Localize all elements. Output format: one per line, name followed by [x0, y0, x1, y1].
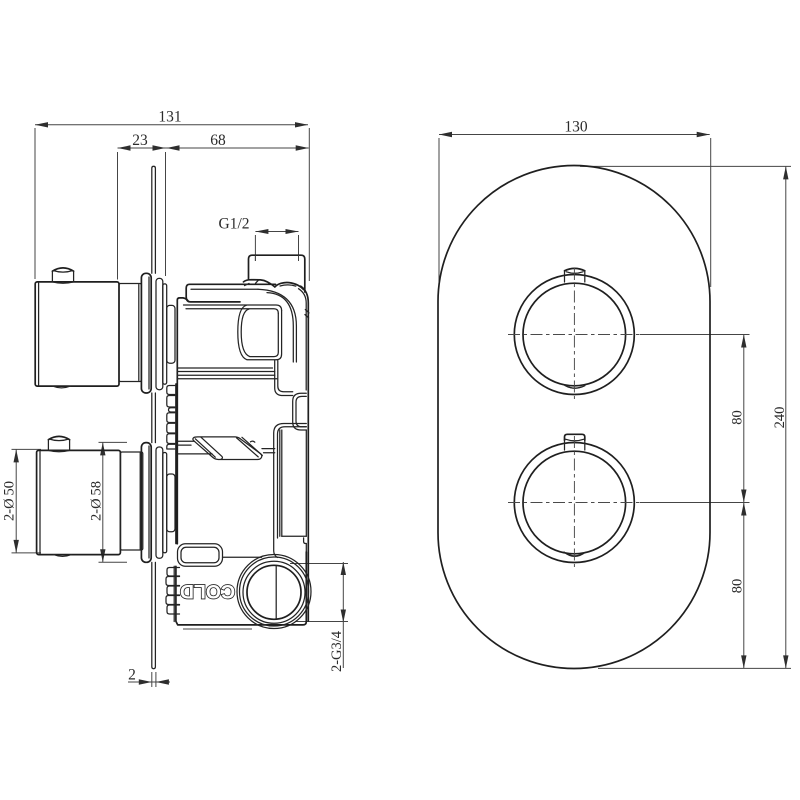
svg-text:COLD: COLD [180, 580, 235, 602]
svg-text:2-G3/4: 2-G3/4 [329, 630, 345, 672]
svg-text:2: 2 [128, 667, 136, 684]
svg-text:240: 240 [772, 407, 788, 429]
svg-text:80: 80 [729, 579, 745, 594]
svg-text:80: 80 [729, 410, 745, 425]
svg-text:68: 68 [210, 132, 226, 149]
svg-text:131: 131 [158, 109, 181, 126]
svg-text:2-Ø 58: 2-Ø 58 [88, 481, 104, 521]
svg-text:130: 130 [564, 119, 588, 136]
svg-text:23: 23 [132, 132, 148, 149]
svg-text:G1/2: G1/2 [219, 216, 250, 233]
svg-text:2-Ø 50: 2-Ø 50 [2, 481, 18, 521]
